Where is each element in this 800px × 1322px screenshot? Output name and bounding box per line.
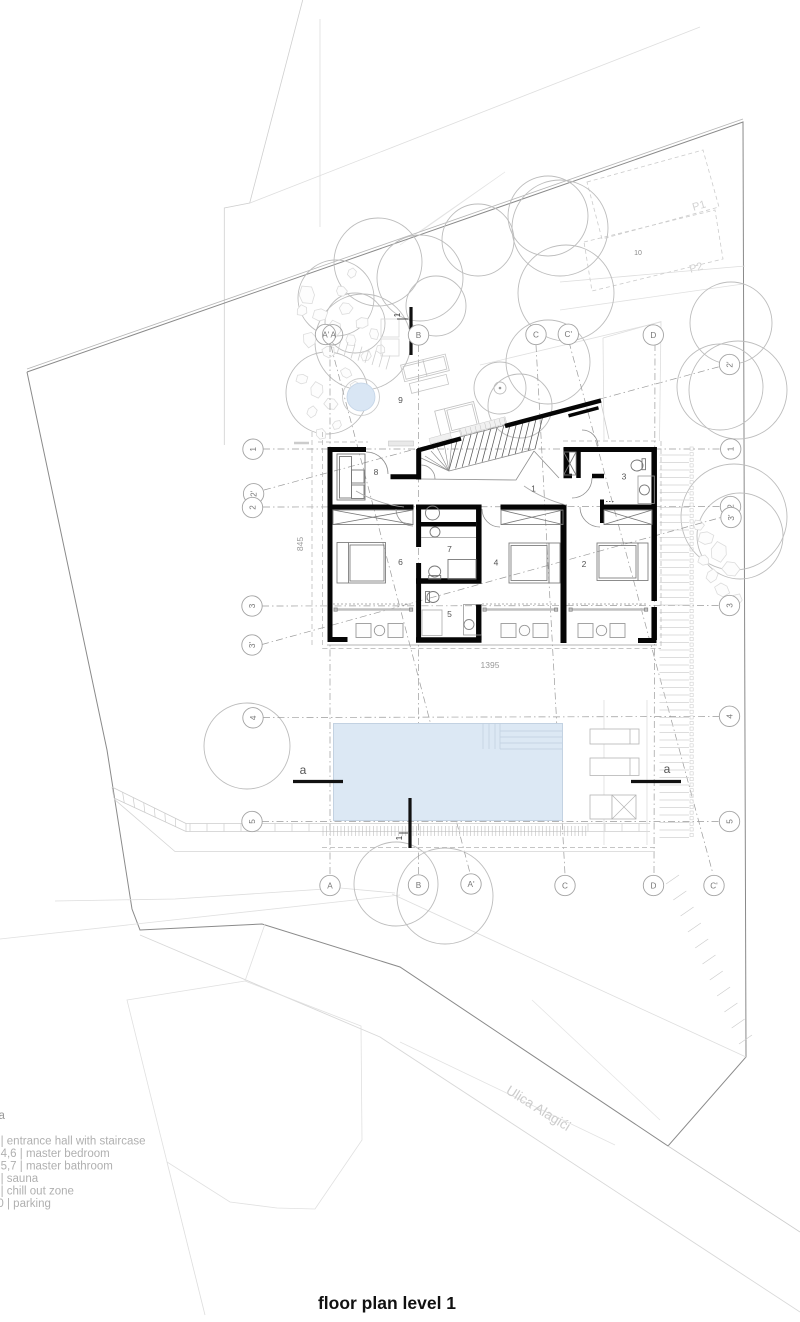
svg-text:2': 2' [725, 361, 734, 368]
svg-text:1: 1 [727, 446, 736, 451]
svg-text:C': C' [565, 330, 573, 339]
svg-text:A: A [330, 331, 336, 340]
svg-text:9 | chill out zone: 9 | chill out zone [0, 1185, 74, 1197]
svg-text:10: 10 [634, 250, 642, 257]
svg-text:3: 3 [725, 603, 734, 608]
svg-text:9: 9 [398, 395, 403, 405]
svg-text:8: 8 [374, 467, 379, 477]
svg-text:D: D [650, 331, 656, 340]
svg-text:3': 3' [727, 514, 736, 521]
svg-text:B: B [416, 881, 422, 890]
svg-text:5: 5 [725, 819, 734, 824]
svg-text:4: 4 [725, 714, 734, 719]
svg-text:D: D [651, 881, 657, 890]
svg-text:845: 845 [295, 537, 305, 551]
svg-text:1: 1 [393, 312, 402, 317]
svg-text:2: 2 [248, 505, 257, 510]
svg-text:6: 6 [398, 557, 403, 567]
svg-text:3: 3 [622, 472, 627, 482]
svg-text:1395: 1395 [481, 660, 500, 670]
svg-text:C': C' [710, 881, 718, 890]
svg-text:C: C [533, 330, 539, 339]
svg-text:3': 3' [248, 642, 257, 649]
svg-text:5: 5 [447, 609, 452, 619]
svg-text:2: 2 [582, 559, 587, 569]
svg-text:A': A' [467, 880, 474, 889]
svg-text:floor plan level 1: floor plan level 1 [318, 1293, 456, 1313]
svg-text:1: 1 [395, 835, 404, 840]
svg-text:legenda: legenda [0, 1110, 6, 1122]
svg-text:3: 3 [248, 603, 257, 608]
svg-text:8 | sauna: 8 | sauna [0, 1173, 39, 1185]
svg-text:C: C [562, 881, 568, 890]
svg-text:2,4,6 | master bedroom: 2,4,6 | master bedroom [0, 1148, 110, 1160]
svg-text:3,5,7 | master bathroom: 3,5,7 | master bathroom [0, 1160, 113, 1172]
svg-text:B: B [416, 331, 422, 340]
svg-text:a: a [664, 762, 671, 776]
svg-text:1: 1 [249, 446, 258, 451]
svg-text:10 | parking: 10 | parking [0, 1198, 51, 1210]
svg-text:7: 7 [447, 544, 452, 554]
svg-text:a: a [300, 763, 307, 777]
svg-text:1: 1 [531, 484, 536, 494]
svg-text:4: 4 [494, 558, 499, 568]
svg-text:2': 2' [250, 490, 259, 497]
svg-text:A: A [327, 881, 333, 890]
svg-text:1 | entrance hall with stairca: 1 | entrance hall with staircase [0, 1136, 145, 1148]
svg-text:5: 5 [248, 819, 257, 824]
svg-text:4: 4 [249, 715, 258, 720]
